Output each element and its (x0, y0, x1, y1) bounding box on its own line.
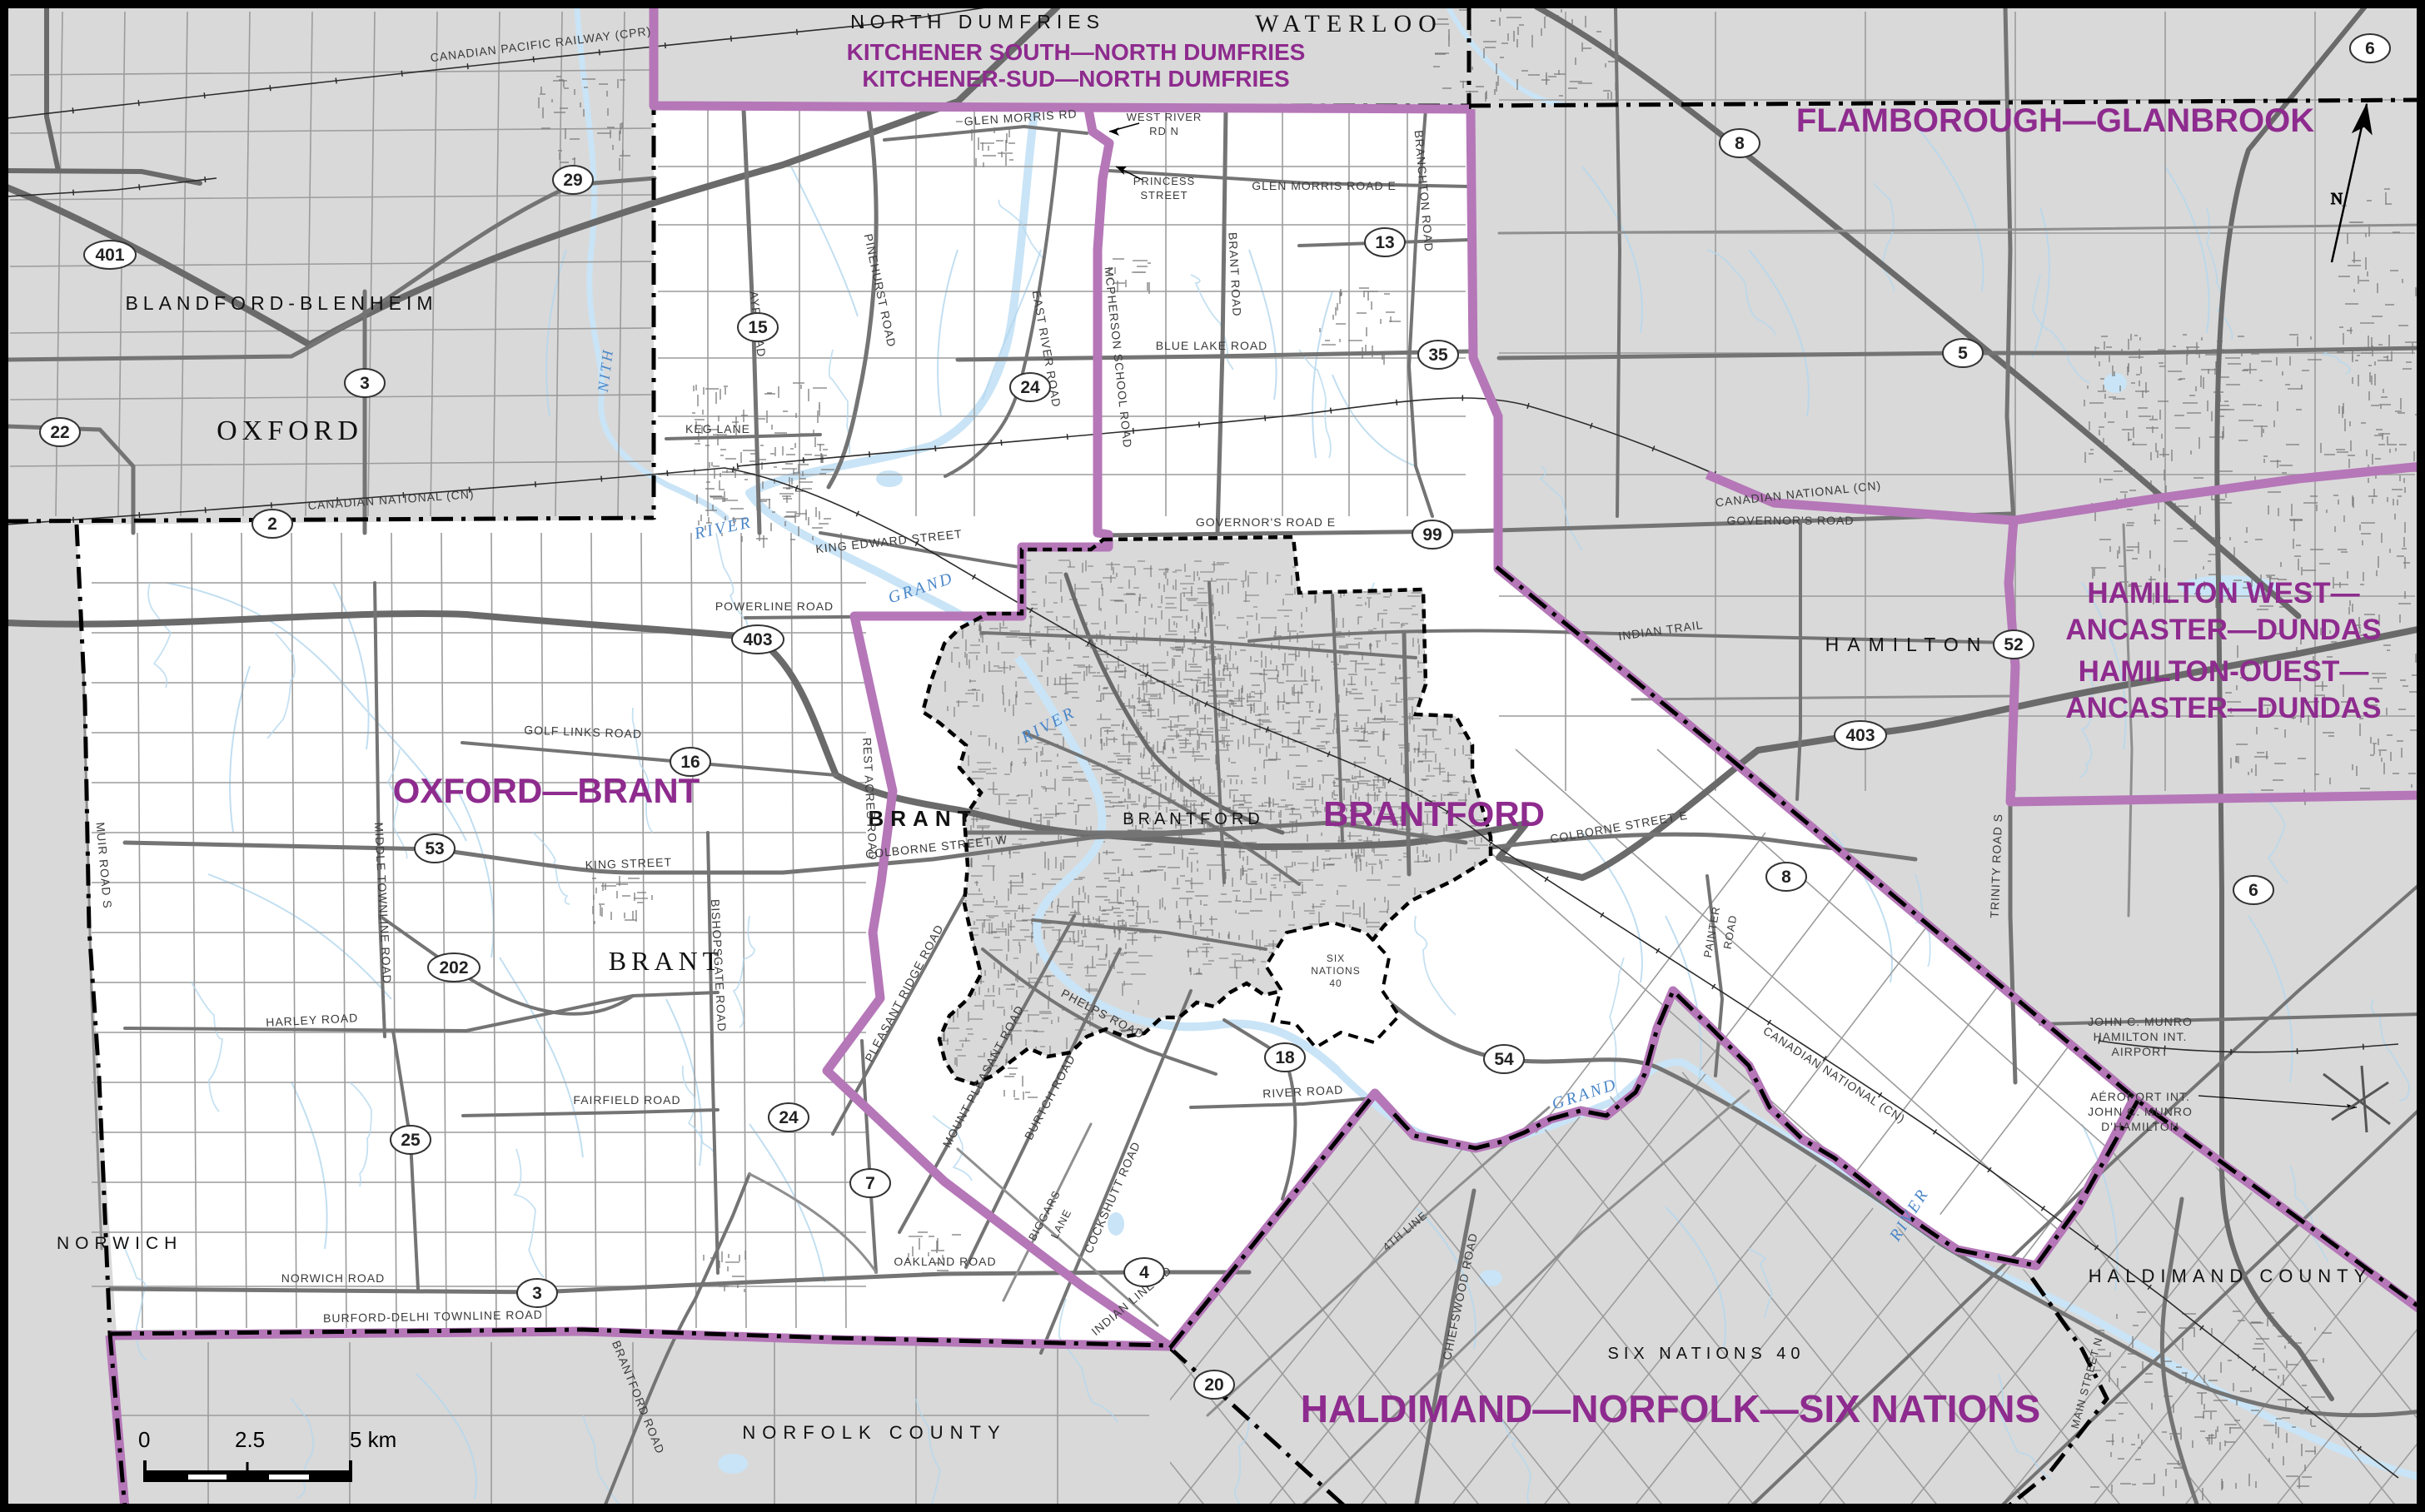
svg-text:25: 25 (401, 1131, 421, 1150)
svg-text:HAMILTON-OUEST—: HAMILTON-OUEST— (2079, 655, 2369, 688)
svg-text:JOHN C. MUNRO: JOHN C. MUNRO (2088, 1015, 2193, 1028)
svg-text:NORWICH: NORWICH (57, 1234, 182, 1253)
svg-text:BLUE LAKE ROAD: BLUE LAKE ROAD (1156, 339, 1268, 352)
svg-text:54: 54 (1494, 1050, 1514, 1069)
svg-text:7: 7 (865, 1174, 875, 1193)
svg-text:BLANDFORD-BLENHEIM: BLANDFORD-BLENHEIM (125, 292, 437, 314)
svg-text:BRANT: BRANT (869, 806, 978, 831)
svg-text:24: 24 (779, 1108, 799, 1127)
svg-text:0: 0 (138, 1427, 150, 1452)
svg-text:403: 403 (1845, 726, 1875, 745)
svg-text:22: 22 (50, 423, 69, 442)
svg-text:KITCHENER-SUD—NORTH DUMFRIES: KITCHENER-SUD—NORTH DUMFRIES (862, 66, 1289, 92)
svg-text:FAIRFIELD ROAD: FAIRFIELD ROAD (573, 1093, 680, 1107)
svg-text:SIX NATIONS 40: SIX NATIONS 40 (1607, 1345, 1805, 1363)
svg-text:NORTH DUMFRIES: NORTH DUMFRIES (850, 11, 1105, 32)
svg-text:BRANTFORD: BRANTFORD (1123, 810, 1263, 828)
svg-text:ANCASTER—DUNDAS: ANCASTER—DUNDAS (2065, 692, 2381, 724)
svg-text:3: 3 (532, 1284, 542, 1303)
svg-text:4: 4 (1139, 1263, 1149, 1282)
svg-text:3: 3 (360, 374, 370, 393)
svg-text:99: 99 (1422, 525, 1442, 545)
svg-text:N: N (2331, 190, 2343, 208)
svg-text:KITCHENER SOUTH—NORTH DUMFRIES: KITCHENER SOUTH—NORTH DUMFRIES (847, 39, 1306, 65)
svg-text:GLEN MORRIS ROAD E: GLEN MORRIS ROAD E (1252, 179, 1397, 192)
svg-text:HAMILTON: HAMILTON (1825, 634, 1989, 655)
svg-text:D'HAMILTON: D'HAMILTON (2101, 1120, 2179, 1133)
svg-text:SIX: SIX (1327, 952, 1345, 964)
svg-text:KEG LANE: KEG LANE (685, 422, 750, 435)
svg-text:STREET: STREET (1140, 189, 1188, 201)
svg-text:GOVERNOR'S ROAD E: GOVERNOR'S ROAD E (1196, 515, 1336, 529)
svg-text:WATERLOO: WATERLOO (1255, 10, 1443, 37)
svg-text:403: 403 (743, 630, 772, 649)
svg-text:401: 401 (95, 246, 124, 265)
svg-text:HALDIMAND COUNTY: HALDIMAND COUNTY (2089, 1266, 2373, 1286)
svg-text:6: 6 (2248, 881, 2258, 900)
svg-text:53: 53 (425, 839, 444, 858)
svg-text:JOHN C. MUNRO: JOHN C. MUNRO (2088, 1105, 2193, 1118)
svg-text:BRANTFORD: BRANTFORD (1323, 794, 1545, 833)
svg-text:52: 52 (2004, 635, 2023, 654)
svg-text:24: 24 (1020, 378, 1040, 397)
svg-text:PRINCESS: PRINCESS (1133, 175, 1195, 187)
svg-text:2: 2 (267, 515, 277, 534)
svg-text:HALDIMAND—NORFOLK—SIX NATIONS: HALDIMAND—NORFOLK—SIX NATIONS (1301, 1387, 2040, 1430)
svg-text:6: 6 (2365, 39, 2375, 58)
svg-text:20: 20 (1204, 1375, 1223, 1395)
svg-text:40: 40 (1329, 977, 1342, 989)
svg-text:POWERLINE ROAD: POWERLINE ROAD (715, 599, 834, 613)
svg-text:FLAMBOROUGH—GLANBROOK: FLAMBOROUGH—GLANBROOK (1796, 102, 2314, 139)
svg-text:HAMILTON WEST—: HAMILTON WEST— (2087, 577, 2359, 609)
svg-text:15: 15 (748, 318, 768, 337)
svg-text:8: 8 (1781, 868, 1791, 887)
svg-text:HAMILTON INT.: HAMILTON INT. (2094, 1030, 2188, 1043)
svg-text:BRANT: BRANT (609, 946, 724, 976)
svg-text:OAKLAND ROAD: OAKLAND ROAD (894, 1255, 996, 1268)
svg-text:AÉROPORT INT.: AÉROPORT INT. (2090, 1090, 2190, 1103)
svg-text:WEST RIVER: WEST RIVER (1127, 111, 1203, 123)
svg-text:5: 5 (1958, 344, 1968, 363)
svg-text:GOVERNOR'S ROAD: GOVERNOR'S ROAD (1726, 514, 1854, 527)
svg-text:29: 29 (563, 171, 582, 190)
svg-text:2.5: 2.5 (235, 1427, 265, 1452)
svg-text:ANCASTER—DUNDAS: ANCASTER—DUNDAS (2065, 614, 2381, 646)
svg-text:NORFOLK COUNTY: NORFOLK COUNTY (742, 1422, 1006, 1443)
svg-text:OXFORD—BRANT: OXFORD—BRANT (393, 771, 700, 810)
svg-text:RD N: RD N (1149, 125, 1179, 137)
svg-text:16: 16 (680, 753, 700, 772)
svg-text:5 km: 5 km (350, 1427, 396, 1452)
svg-text:AIRPORT: AIRPORT (2112, 1045, 2169, 1058)
svg-text:OXFORD: OXFORD (217, 415, 363, 446)
svg-text:NATIONS: NATIONS (1311, 965, 1360, 977)
svg-text:NORWICH ROAD: NORWICH ROAD (281, 1271, 386, 1285)
svg-text:13: 13 (1375, 233, 1394, 252)
svg-text:202: 202 (439, 958, 468, 977)
svg-text:8: 8 (1735, 134, 1745, 153)
svg-text:18: 18 (1275, 1048, 1295, 1067)
svg-text:35: 35 (1428, 346, 1448, 365)
